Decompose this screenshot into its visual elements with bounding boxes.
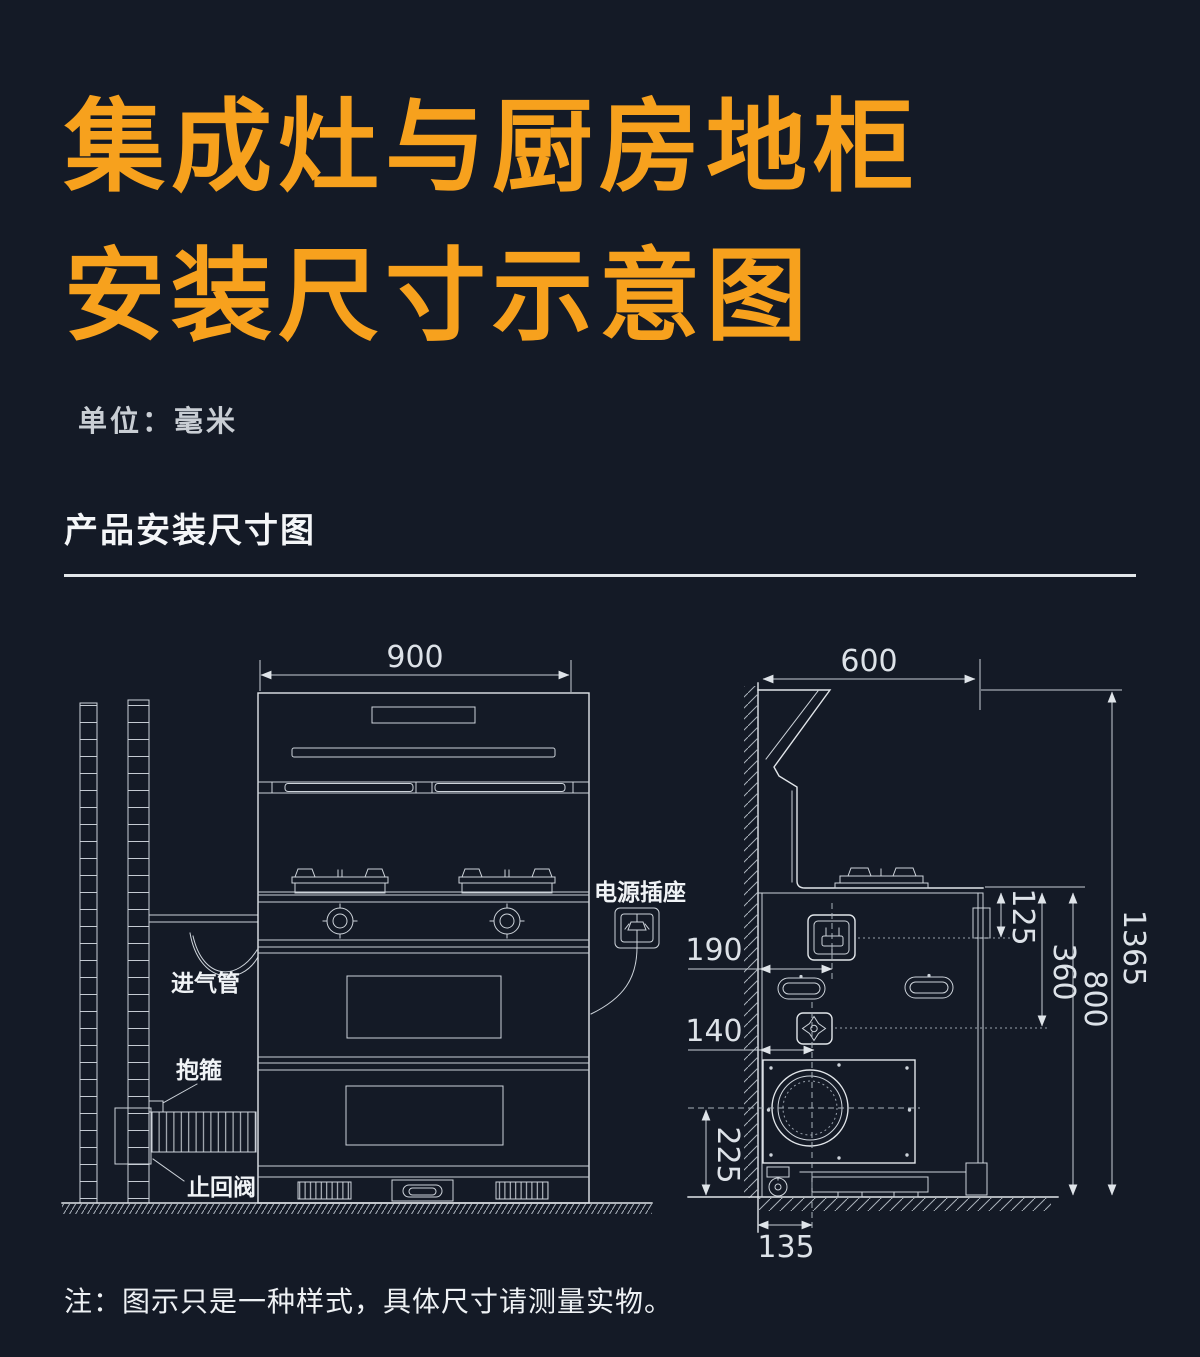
gas-intake-pipe	[149, 915, 258, 976]
footnote: 注：图示只是一种样式，具体尺寸请测量实物。	[64, 1280, 673, 1320]
handle-ovals	[778, 974, 953, 999]
hood-profile	[758, 690, 983, 893]
wall	[744, 683, 758, 1232]
dim-label-900: 900	[386, 640, 443, 675]
upper-door-window	[347, 976, 501, 1038]
flue-duct	[80, 700, 151, 1203]
dim-label-140: 140	[685, 1014, 742, 1049]
burner-side-profile	[835, 868, 928, 888]
vent-slot	[292, 748, 555, 757]
dim-fan-height-225: 225	[706, 1110, 745, 1195]
dim-total-height-1365: 1365	[1112, 692, 1151, 1195]
side-view-diagram: 600 1365 800 360 125 190 140	[685, 644, 1151, 1265]
dim-socket-drop-125: 125	[1001, 888, 1040, 945]
installation-dimension-diagram: 900 进气管 抱箍 止回阀 电源插座	[0, 0, 1200, 1357]
caster-wheel	[767, 1167, 789, 1196]
gas-inlet	[797, 1013, 832, 1044]
stove-front-outline	[258, 693, 589, 1203]
front-view-diagram: 900 进气管 抱箍 止回阀 电源插座	[62, 640, 686, 1214]
socket-icon	[615, 908, 659, 948]
tray-left	[285, 784, 413, 792]
burner-right	[459, 869, 555, 893]
dim-label-600: 600	[840, 644, 897, 679]
display-window	[372, 707, 475, 723]
control-knob-left	[323, 904, 357, 938]
control-knob-right	[490, 904, 524, 938]
power-socket-callout: 电源插座	[591, 879, 686, 1014]
corrugated-hose	[149, 1101, 256, 1152]
ground-left	[62, 1203, 652, 1214]
tray-right	[435, 784, 565, 792]
counter-front-trim	[973, 908, 990, 938]
dim-label-800: 800	[1077, 970, 1112, 1027]
burner-left	[292, 869, 388, 893]
dim-label-125: 125	[1005, 888, 1040, 945]
dim-label-225: 225	[710, 1126, 745, 1183]
lower-door-window	[346, 1086, 503, 1145]
dim-width-900: 900	[260, 640, 571, 692]
label-intake-pipe: 进气管	[171, 970, 240, 996]
ground-right	[688, 1197, 1058, 1211]
dim-label-190: 190	[685, 933, 742, 968]
label-check-valve: 止回阀	[187, 1174, 256, 1200]
dim-label-135: 135	[757, 1230, 814, 1265]
dim-label-1365: 1365	[1116, 910, 1151, 986]
dim-hood-depth-600: 600	[763, 644, 980, 710]
cabinet-side	[762, 893, 990, 1197]
dim-fan-offset-135: 135	[757, 1225, 814, 1265]
clamp-leader-line	[163, 1084, 197, 1103]
label-clamp: 抱箍	[176, 1057, 222, 1083]
base-vents-and-handle	[298, 1180, 548, 1201]
label-power-socket: 电源插座	[594, 879, 686, 905]
dim-counter-height-800: 800	[1073, 893, 1112, 1195]
check-valve-leader-line	[153, 1159, 184, 1181]
dim-label-360: 360	[1046, 943, 1081, 1000]
fan-panel	[763, 1060, 915, 1163]
power-cord	[591, 947, 637, 1014]
dim-inlet-drop-360: 360	[1042, 893, 1081, 1026]
